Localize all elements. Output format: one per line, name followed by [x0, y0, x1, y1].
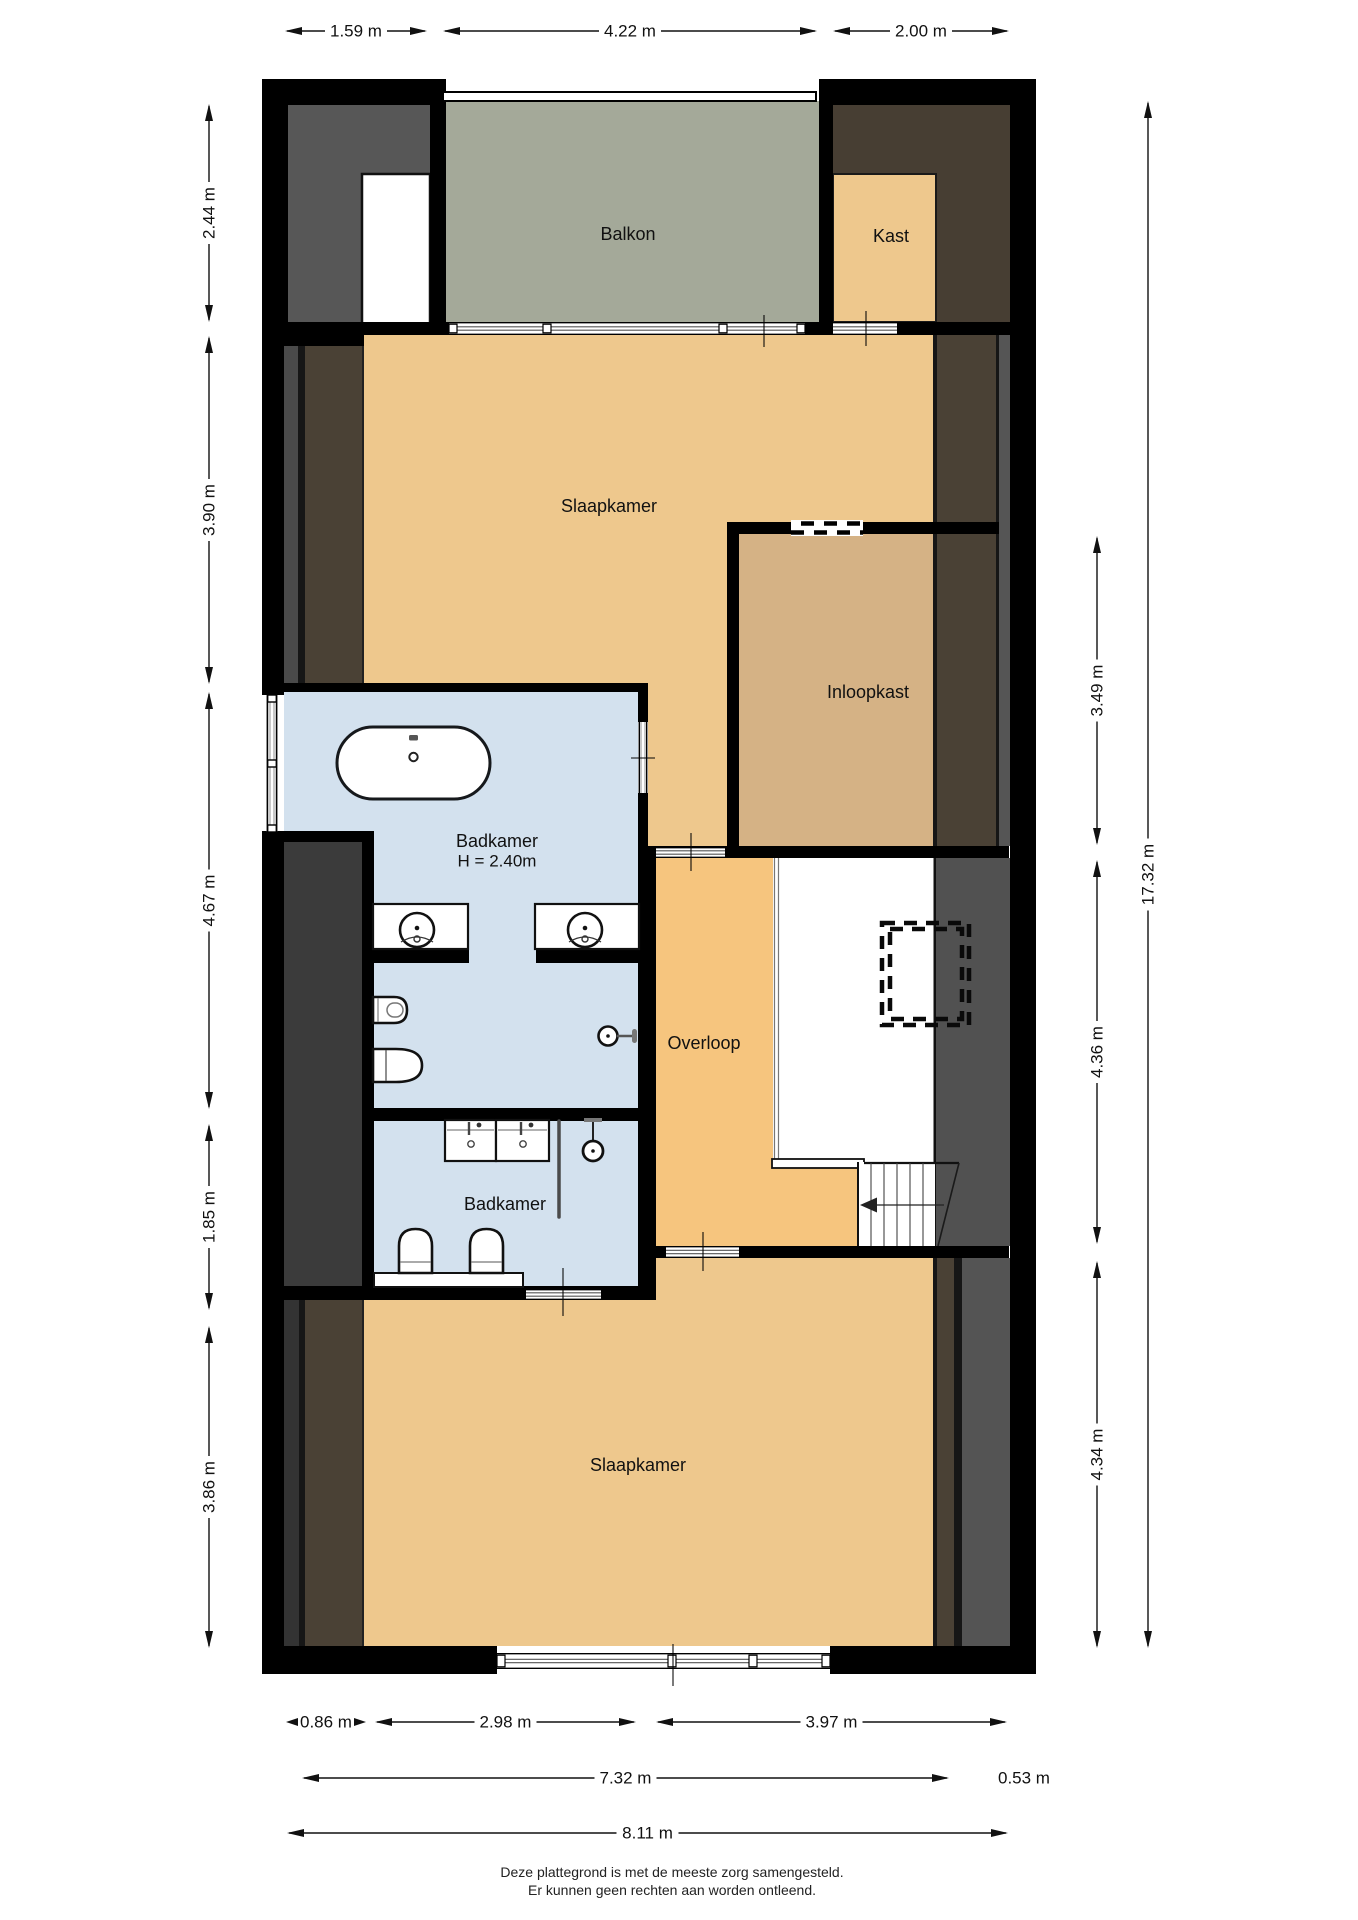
svg-text:3.49 m: 3.49 m — [1088, 665, 1107, 717]
svg-text:4.22 m: 4.22 m — [604, 22, 656, 41]
svg-text:7.32 m: 7.32 m — [600, 1769, 652, 1788]
svg-text:3.90 m: 3.90 m — [200, 484, 219, 536]
svg-text:4.36 m: 4.36 m — [1088, 1026, 1107, 1078]
svg-text:Er kunnen geen rechten aan wor: Er kunnen geen rechten aan worden ontlee… — [528, 1882, 816, 1898]
svg-text:0.53 m: 0.53 m — [998, 1769, 1050, 1788]
svg-text:Badkamer: Badkamer — [464, 1194, 546, 1214]
svg-text:1.59 m: 1.59 m — [330, 22, 382, 41]
svg-text:Overloop: Overloop — [667, 1033, 740, 1053]
svg-text:2.98 m: 2.98 m — [480, 1713, 532, 1732]
svg-text:1.85 m: 1.85 m — [200, 1191, 219, 1243]
svg-text:Kast: Kast — [873, 226, 909, 246]
svg-text:Slaapkamer: Slaapkamer — [590, 1455, 686, 1475]
svg-text:2.44 m: 2.44 m — [200, 187, 219, 239]
svg-text:Slaapkamer: Slaapkamer — [561, 496, 657, 516]
svg-text:4.67 m: 4.67 m — [200, 875, 219, 927]
svg-text:3.97 m: 3.97 m — [806, 1713, 858, 1732]
svg-text:Badkamer: Badkamer — [456, 831, 538, 851]
svg-text:Inloopkast: Inloopkast — [827, 682, 909, 702]
svg-text:4.34 m: 4.34 m — [1088, 1429, 1107, 1481]
svg-text:H = 2.40m: H = 2.40m — [458, 852, 537, 871]
svg-text:2.00 m: 2.00 m — [895, 22, 947, 41]
svg-text:Deze plattegrond is met de mee: Deze plattegrond is met de meeste zorg s… — [500, 1864, 843, 1880]
svg-text:0.86 m: 0.86 m — [300, 1713, 352, 1732]
svg-text:17.32 m: 17.32 m — [1139, 844, 1158, 905]
svg-text:8.11 m: 8.11 m — [622, 1824, 673, 1843]
svg-text:Balkon: Balkon — [600, 224, 655, 244]
svg-text:3.86 m: 3.86 m — [200, 1461, 219, 1513]
